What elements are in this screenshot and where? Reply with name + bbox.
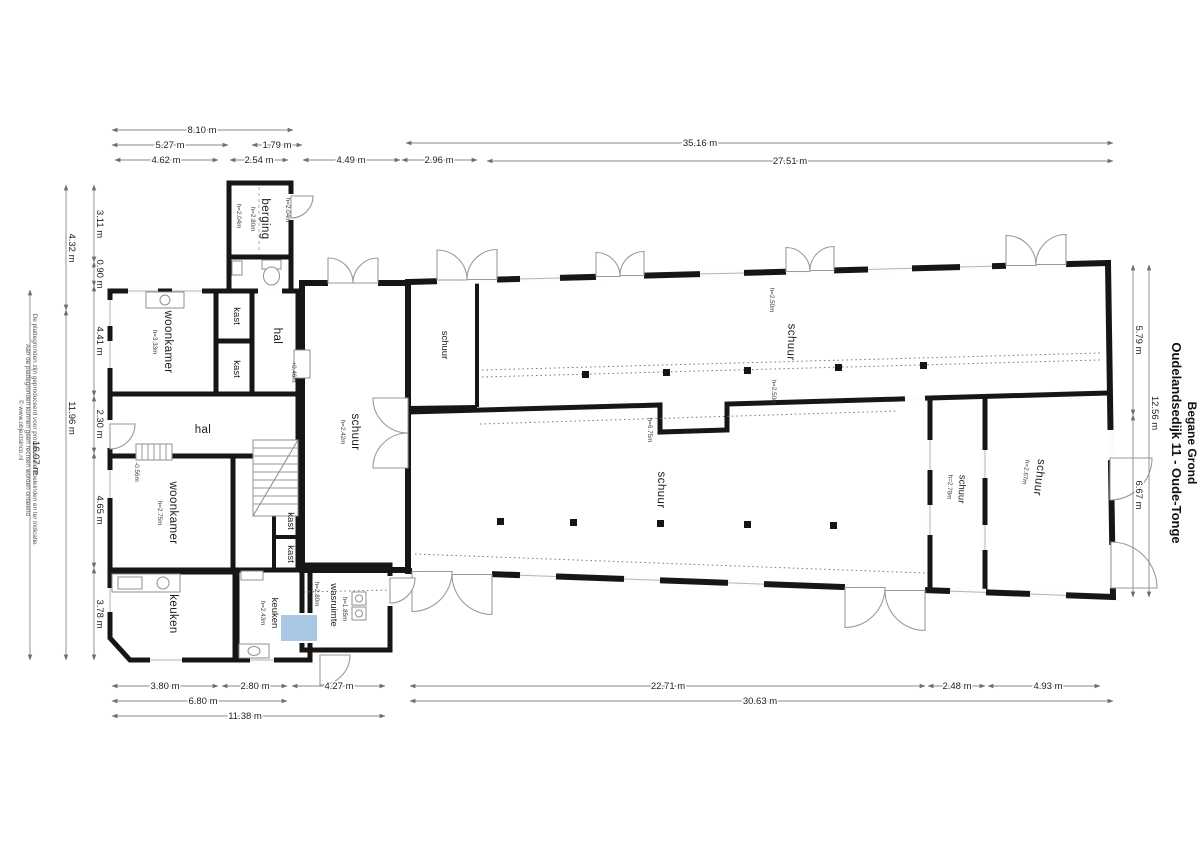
sink-icon (157, 577, 169, 589)
room-label-kast-4: kast (285, 545, 296, 563)
door-arc (390, 578, 415, 603)
dim-left-2: 4.41 m (94, 326, 105, 355)
dim-top-7: 2.96 m (424, 155, 453, 166)
dim-bottom-8: 11.38 m (228, 711, 262, 722)
disclaimer-line-2: Aan de plattegronden kunnen geen rechten… (24, 344, 31, 516)
door-arc (412, 572, 452, 612)
roof-posts (497, 362, 927, 529)
room-label-schuur-midden: schuur (655, 471, 668, 508)
room-height-schuur-midden: h=6.75m (646, 418, 653, 443)
room-label-schuur-smal: schuur (955, 475, 967, 504)
door-arc (353, 258, 378, 283)
door-arc (291, 196, 313, 218)
door-arc (1006, 236, 1036, 266)
room-label-schuur-boven: schuur (784, 323, 797, 360)
door-arc (596, 253, 620, 277)
dim-top-4: 4.62 m (151, 155, 180, 166)
room-label-kast-2: kast (231, 360, 242, 378)
door-arc (1036, 235, 1066, 265)
dim-bottom-1: 2.80 m (240, 681, 269, 692)
room-height-wasruimte: h=1.85m (341, 597, 348, 622)
door-arc (620, 252, 644, 276)
level-hal-boven: +0.46m (290, 361, 297, 382)
stairs-icon (253, 440, 298, 516)
dim-top-0: 8.10 m (187, 125, 216, 136)
room-height2-wasruimte: h=2.80m (313, 582, 320, 607)
room-height-schuur-links: h=2.42m (339, 420, 346, 445)
room-label-hal-boven: hal (271, 328, 283, 345)
room-label-kast-3: kast (285, 512, 296, 530)
door-arc (437, 250, 467, 280)
room-height-berging-left: h=2.04m (235, 204, 242, 229)
dim-top-1: 5.27 m (155, 140, 184, 151)
dim-left-5: 3.78 m (94, 599, 105, 628)
room-label-berging: berging (259, 198, 271, 239)
dim-top-8: 27.51 m (773, 156, 807, 167)
dim-left-3: 2.30 m (94, 409, 105, 438)
dim-top-2: 1.79 m (262, 140, 291, 151)
dim-left-4: 4.65 m (94, 495, 105, 524)
door-arc (467, 250, 497, 280)
plan-title-address: Oudelandsedijk 11 - Oude-Tonge (1169, 342, 1184, 543)
dim-left-7: 11.96 m (66, 401, 77, 435)
room-schuur-barn (408, 263, 1113, 597)
plan-title: Oudelandsedijk 11 - Oude-Tonge Begane Gr… (1169, 342, 1199, 543)
room-label-hal-midden: hal (195, 424, 212, 436)
room-height-berging: h=2.80m (249, 207, 256, 232)
room-label-schuur-klein: schuur (439, 331, 450, 360)
room-label-woonkamer-boven: woonkamer (162, 309, 174, 373)
door-arc (885, 591, 925, 631)
room-height-keuken-rechts: h=2.43m (259, 601, 266, 626)
level-hal-midden: -0.56m (133, 462, 140, 482)
dim-bottom-2: 4.27 m (324, 681, 353, 692)
dim-left-6: 4.32 m (66, 233, 77, 262)
dim-top-3: 35.16 m (683, 138, 717, 149)
dim-top-6: 4.49 m (336, 155, 365, 166)
dim-right-0: 5.79 m (1133, 325, 1144, 354)
dim-right-2: 12.56 m (1149, 396, 1160, 430)
dim-bottom-4: 2.48 m (942, 681, 971, 692)
room-label-keuken-rechts: keuken (269, 598, 280, 629)
room-label-woonkamer-onder: woonkamer (167, 480, 179, 544)
door-arc (786, 248, 810, 272)
door-arc (373, 398, 408, 433)
disclaimer-line-1: De plattegronden zijn geproduceerd voor … (31, 314, 38, 547)
room-label-wasruimte: wasruimte (328, 582, 339, 626)
dim-top-5: 2.54 m (244, 155, 273, 166)
sink-icon (248, 647, 260, 656)
dim-bottom-0: 3.80 m (150, 681, 179, 692)
disclaimer-line-3: © www.objectsinco.nl (17, 400, 25, 460)
room-height-schuur-rechts: h=2.67m (1021, 460, 1031, 485)
door-arc (328, 258, 353, 283)
disclaimer: De plattegronden zijn geproduceerd voor … (17, 314, 38, 547)
room-label-schuur-links: schuur (349, 414, 361, 451)
dim-bottom-5: 4.93 m (1033, 681, 1062, 692)
door-arc (845, 588, 885, 628)
room-label-keuken-links: keuken (167, 594, 179, 633)
room-height-schuur-smal: h=2.78m (945, 475, 953, 500)
door-arc (1111, 542, 1157, 588)
floorplan-page: berging h=2.80m h=2.04m h=2.04m woonkame… (0, 0, 1199, 848)
door-arc (110, 424, 135, 449)
dim-left-0: 3.11 m (94, 210, 105, 238)
door-arc (373, 433, 408, 468)
floorplan-canvas: berging h=2.80m h=2.04m h=2.04m woonkame… (0, 0, 1199, 848)
dim-bottom-7: 30.63 m (743, 696, 777, 707)
steps-icon (136, 444, 172, 460)
door-arc (1110, 458, 1152, 500)
room-height-berging-right: h=2.04m (284, 198, 291, 223)
room-height-woonkamer-onder: h=2.75m (156, 501, 163, 526)
room-height-a-schuur-boven: h=2.50m (768, 288, 775, 313)
dim-bottom-3: 22.71 m (651, 681, 685, 692)
room-label-kast-1: kast (231, 307, 242, 325)
door-arc (452, 575, 492, 615)
door-arc (810, 247, 834, 271)
dim-right-1: 6.67 m (1133, 480, 1144, 509)
plan-title-floor: Begane Grond (1185, 402, 1199, 485)
room-height-b-schuur-boven: h=2.50m (770, 380, 777, 405)
room-height-woonkamer-boven: h=3.33m (151, 330, 158, 355)
room-label-schuur-rechts: schuur (1031, 458, 1047, 496)
dim-bottom-6: 6.80 m (188, 696, 217, 707)
room-douche (280, 614, 318, 642)
dim-left-1: 0.90 m (94, 259, 105, 288)
